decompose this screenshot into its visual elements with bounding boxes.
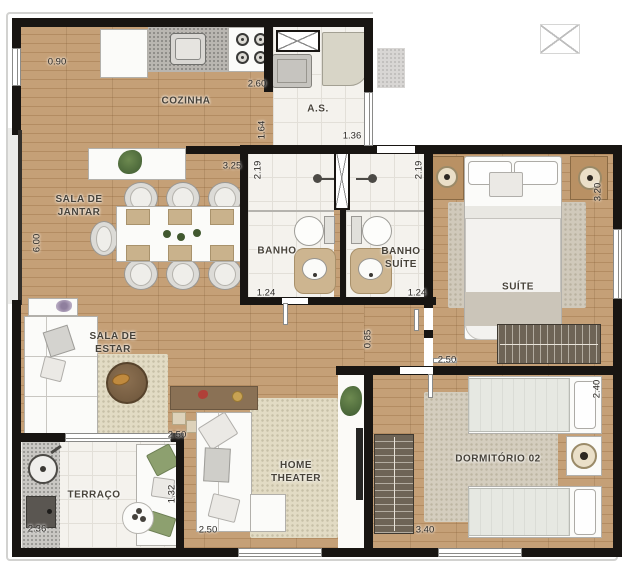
wall bbox=[12, 18, 373, 27]
door-leaf bbox=[414, 309, 419, 331]
shower-divider bbox=[346, 210, 424, 212]
wall bbox=[613, 145, 622, 231]
duvet bbox=[468, 488, 570, 536]
flower-decor bbox=[56, 300, 72, 312]
wash-basin bbox=[358, 258, 383, 280]
dim-3-20: 3.20 bbox=[593, 183, 604, 202]
door-opening bbox=[424, 338, 433, 366]
neighbor-sink bbox=[377, 48, 405, 88]
placemat bbox=[168, 209, 192, 225]
placemat bbox=[126, 245, 150, 261]
stove-burner bbox=[236, 51, 249, 64]
room-label-suite: SUÍTE bbox=[502, 281, 534, 294]
placemat bbox=[126, 209, 150, 225]
toilet bbox=[362, 216, 392, 246]
placemat bbox=[210, 245, 234, 261]
toilet-tank bbox=[351, 216, 362, 244]
dim-2-36: 2.36 bbox=[28, 524, 47, 535]
dining-chair bbox=[166, 258, 200, 290]
ht-sofa-chaise bbox=[250, 494, 286, 532]
wall bbox=[613, 297, 622, 557]
room-label-dormitorio-02: DORMITÓRIO 02 bbox=[455, 453, 540, 466]
dim-2-50-estar: 2.50 bbox=[168, 430, 187, 441]
fridge bbox=[100, 29, 148, 78]
dim-2-40: 2.40 bbox=[592, 380, 603, 399]
plumbing-shaft bbox=[334, 146, 350, 210]
table-decor bbox=[140, 516, 146, 522]
door-opening bbox=[377, 146, 415, 153]
wall bbox=[364, 370, 373, 557]
window bbox=[12, 48, 21, 86]
dim-3-40: 3.40 bbox=[416, 525, 435, 536]
dining-chair bbox=[90, 221, 118, 256]
wall bbox=[340, 208, 346, 298]
toilet-tank bbox=[324, 216, 335, 244]
terrace-table bbox=[122, 502, 154, 534]
room-label-home-theater: HOME THEATER bbox=[271, 459, 321, 485]
lamp-icon bbox=[436, 166, 458, 188]
outside-area bbox=[373, 10, 618, 146]
window bbox=[364, 92, 373, 146]
wall bbox=[424, 145, 622, 154]
sofa-seam bbox=[25, 356, 97, 357]
dim-1-36: 1.36 bbox=[343, 131, 362, 142]
dining-chair bbox=[124, 258, 158, 290]
sliding-door bbox=[65, 433, 171, 442]
window bbox=[438, 548, 522, 557]
dim-0-90: 0.90 bbox=[48, 57, 67, 68]
tv-console bbox=[170, 386, 258, 410]
dining-chair bbox=[208, 258, 242, 290]
dim-6-00: 6.00 bbox=[32, 234, 43, 253]
shower-arm bbox=[356, 178, 370, 180]
placemat bbox=[168, 245, 192, 261]
floor-plan: COZINHA A.S. SALA DE JANTAR BANHO BANHO … bbox=[0, 0, 630, 572]
window bbox=[613, 229, 622, 299]
table-plant-icon bbox=[177, 233, 185, 241]
door-leaf bbox=[283, 303, 288, 325]
room-label-cozinha: COZINHA bbox=[161, 95, 210, 108]
dim-3-25: 3.25 bbox=[223, 161, 242, 172]
table-decor bbox=[136, 508, 142, 514]
neighbor-shaft bbox=[540, 24, 580, 54]
wall bbox=[18, 130, 22, 305]
laundry-sink bbox=[272, 54, 312, 88]
tv-panel bbox=[356, 428, 363, 500]
suite-wardrobe bbox=[497, 324, 601, 364]
table-plant-icon bbox=[193, 229, 201, 237]
wall bbox=[424, 330, 433, 338]
pillow bbox=[574, 489, 596, 535]
sofa-cushion bbox=[203, 447, 231, 482]
wall bbox=[364, 18, 373, 94]
duct-shaft bbox=[276, 30, 320, 52]
lamp-icon bbox=[571, 443, 597, 469]
room-label-banho-suite: BANHO SUÍTE bbox=[381, 245, 420, 271]
bed-runner bbox=[465, 292, 561, 326]
dim-2-60: 2.60 bbox=[248, 79, 267, 90]
wall bbox=[424, 154, 433, 308]
ottoman-cube bbox=[172, 412, 186, 425]
room-label-banho: BANHO bbox=[257, 245, 296, 258]
room-label-terraco: TERRAÇO bbox=[68, 489, 121, 502]
dim-2-19-banho-suite: 2.19 bbox=[414, 161, 425, 180]
stove-burner bbox=[236, 33, 249, 46]
door-opening bbox=[424, 308, 433, 330]
dim-0-85: 0.85 bbox=[363, 330, 374, 349]
shower-arm bbox=[320, 178, 334, 180]
door-leaf bbox=[428, 374, 433, 398]
table-decor bbox=[132, 514, 138, 520]
wall bbox=[20, 433, 67, 442]
window bbox=[238, 548, 322, 557]
bowl-decor bbox=[232, 391, 243, 402]
dim-2-50-ht: 2.50 bbox=[199, 525, 218, 536]
terrace-sink bbox=[28, 454, 58, 484]
dim-2-50-suite: 2.50 bbox=[438, 355, 457, 366]
pillow bbox=[489, 172, 523, 197]
door-opening bbox=[400, 367, 433, 374]
room-label-sala-estar: SALA DE ESTAR bbox=[89, 330, 136, 356]
placemat bbox=[210, 209, 234, 225]
wall bbox=[12, 300, 21, 557]
dim-2-19-banho: 2.19 bbox=[253, 161, 264, 180]
toilet bbox=[294, 216, 324, 246]
dorm-wardrobe bbox=[374, 434, 414, 534]
wash-basin bbox=[302, 258, 327, 280]
dim-1-64: 1.64 bbox=[257, 121, 268, 140]
washing-machine bbox=[322, 32, 368, 86]
sofa-seam bbox=[25, 396, 97, 397]
shower-divider bbox=[248, 210, 334, 212]
wall bbox=[336, 366, 622, 375]
dim-1-24-banho-suite: 1.24 bbox=[408, 288, 427, 299]
room-label-as: A.S. bbox=[307, 103, 328, 116]
room-label-sala-jantar: SALA DE JANTAR bbox=[55, 193, 102, 219]
dim-1-32: 1.32 bbox=[167, 485, 178, 504]
kitchen-sink bbox=[170, 33, 206, 65]
wall bbox=[186, 146, 244, 154]
duvet bbox=[468, 378, 570, 432]
table-plant-icon bbox=[163, 230, 171, 238]
dim-1-24-banho: 1.24 bbox=[257, 288, 276, 299]
